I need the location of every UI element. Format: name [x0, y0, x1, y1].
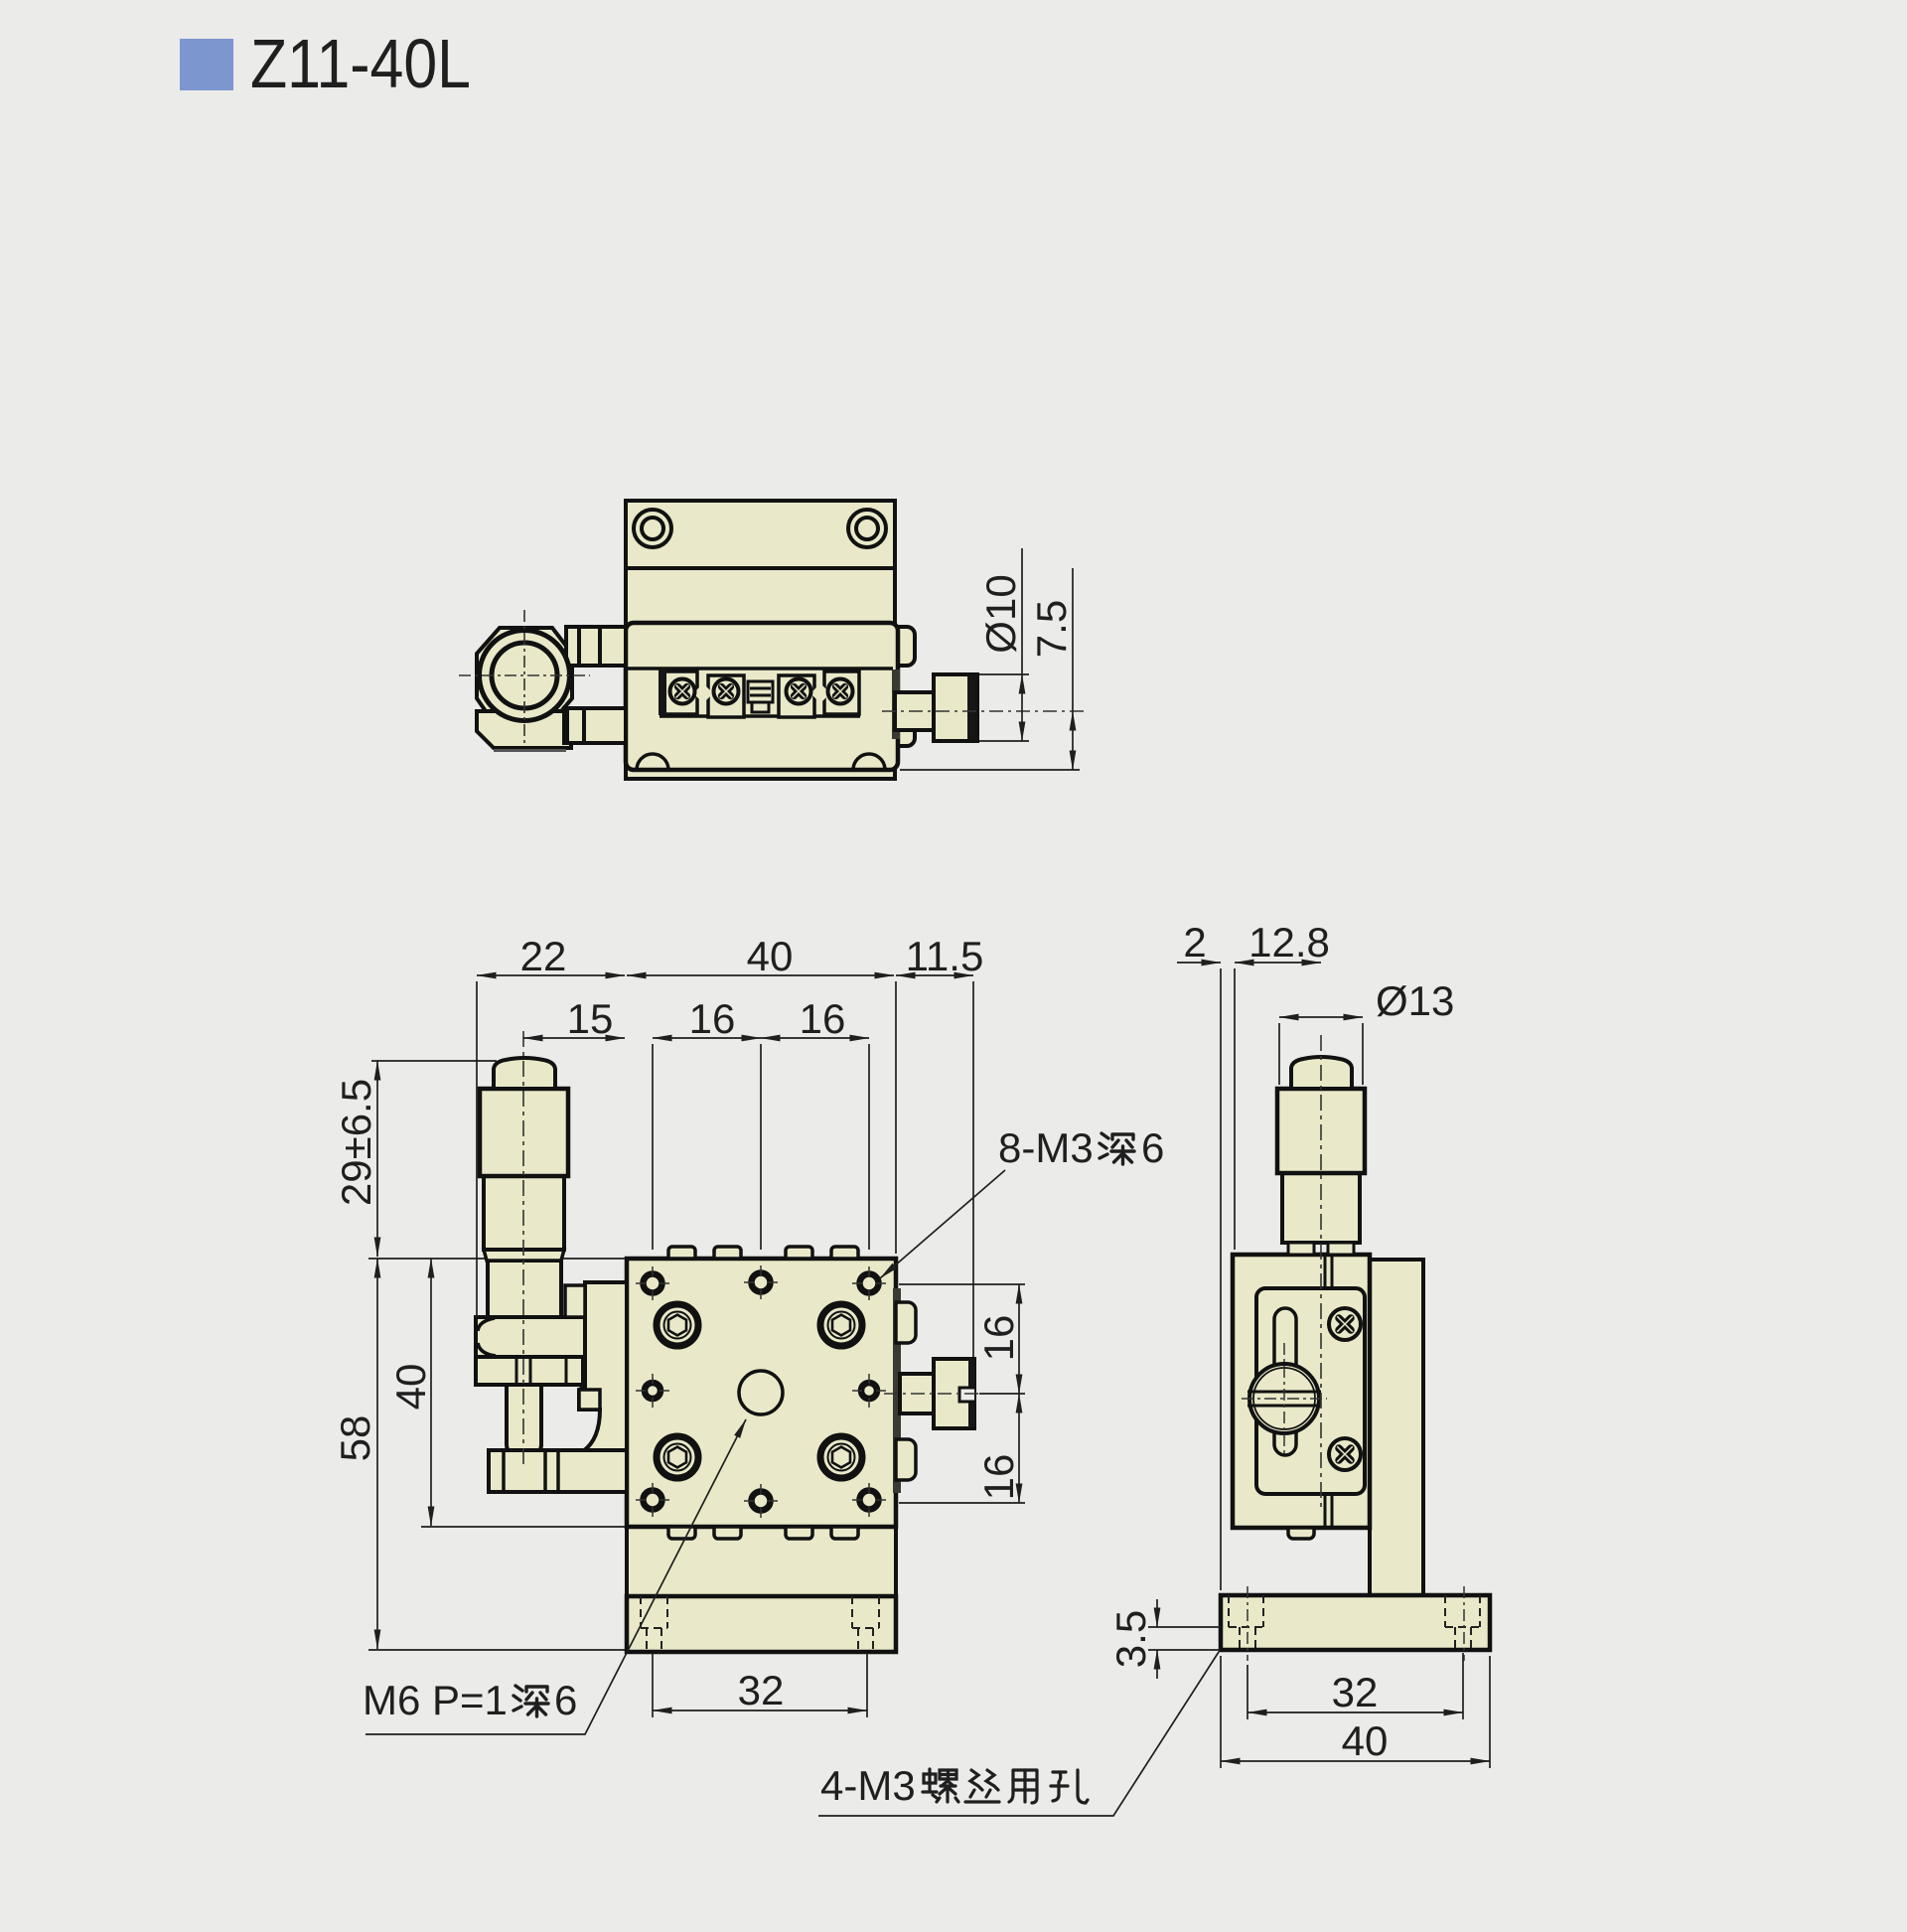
- svg-text:32: 32: [738, 1667, 785, 1713]
- svg-text:29±6.5: 29±6.5: [333, 1079, 379, 1206]
- svg-text:M6 P=1: M6 P=1: [363, 1677, 508, 1723]
- svg-text:Ø13: Ø13: [1376, 977, 1454, 1024]
- svg-text:2: 2: [1183, 919, 1206, 966]
- svg-text:40: 40: [1342, 1717, 1389, 1764]
- svg-text:Z11-40L: Z11-40L: [250, 25, 471, 102]
- svg-text:16: 16: [689, 995, 736, 1042]
- svg-text:6: 6: [554, 1677, 577, 1723]
- svg-text:22: 22: [520, 933, 567, 979]
- svg-text:3.5: 3.5: [1107, 1610, 1154, 1668]
- svg-text:16: 16: [975, 1454, 1022, 1501]
- svg-text:40: 40: [747, 933, 794, 979]
- svg-text:Ø10: Ø10: [977, 574, 1024, 653]
- svg-text:16: 16: [975, 1315, 1022, 1362]
- svg-text:6: 6: [1141, 1124, 1164, 1171]
- svg-text:58: 58: [332, 1415, 378, 1462]
- svg-text:8-M3: 8-M3: [998, 1124, 1094, 1171]
- svg-text:16: 16: [800, 995, 846, 1042]
- svg-text:12.8: 12.8: [1248, 919, 1330, 966]
- svg-text:32: 32: [1332, 1669, 1379, 1715]
- svg-text:11.5: 11.5: [906, 933, 984, 979]
- svg-text:40: 40: [387, 1364, 434, 1411]
- svg-text:15: 15: [567, 995, 614, 1042]
- svg-text:7.5: 7.5: [1028, 600, 1075, 658]
- svg-text:4-M3: 4-M3: [820, 1762, 916, 1809]
